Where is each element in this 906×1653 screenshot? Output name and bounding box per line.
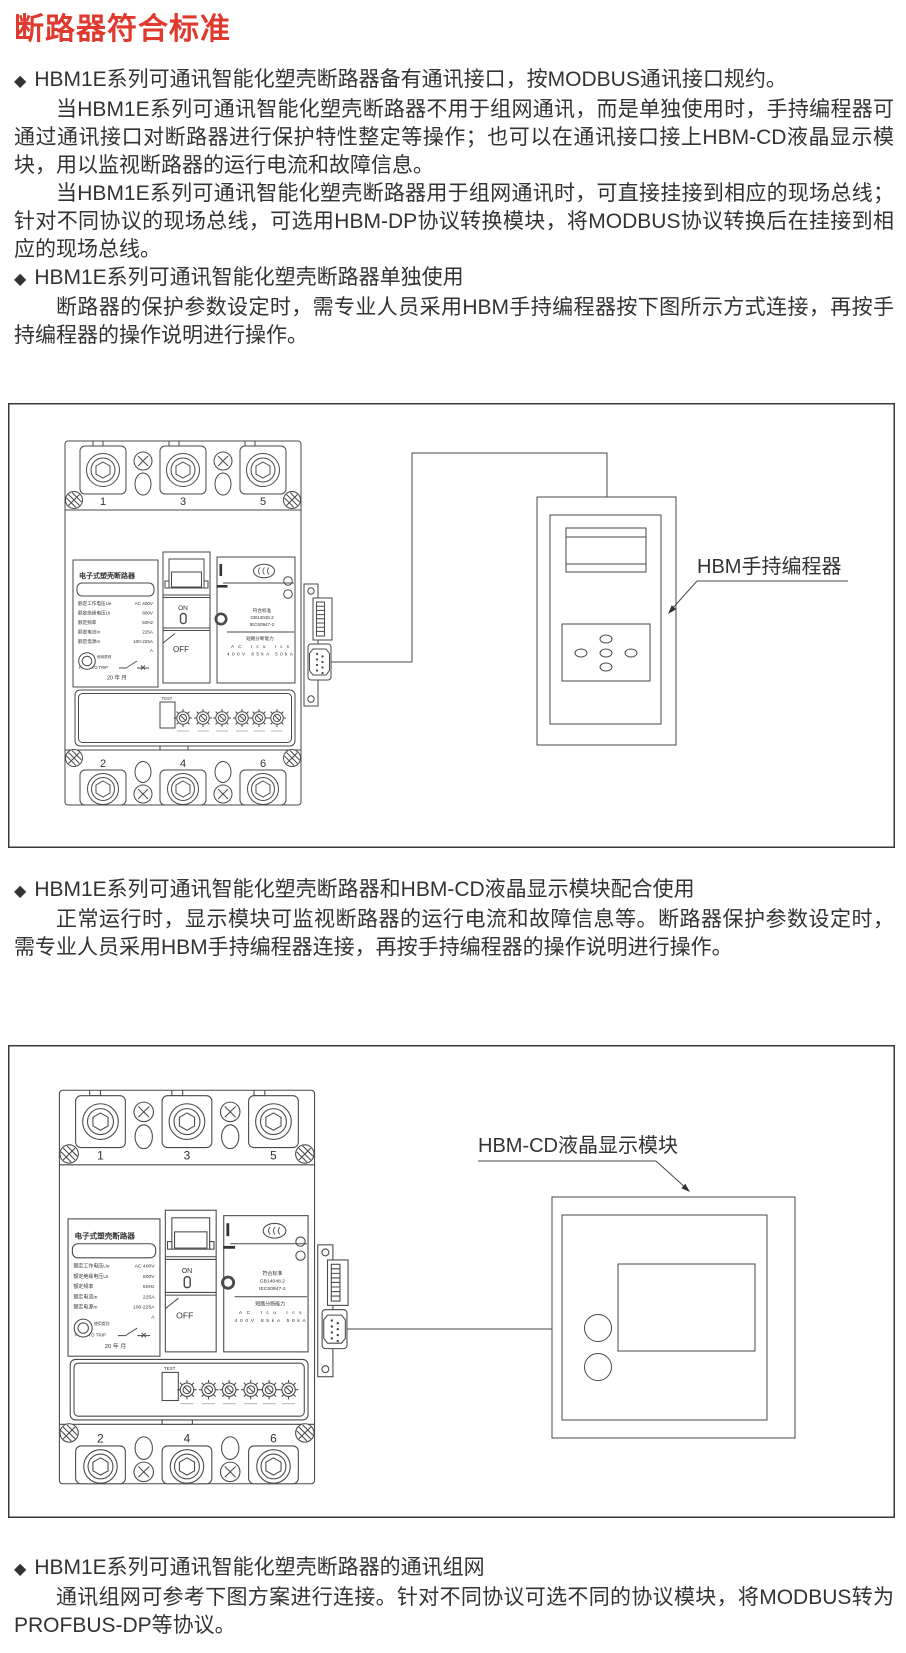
- paragraph: 正常运行时，显示模块可监视断路器的运行电流和故障信息等。断路器保护参数设定时，需…: [14, 906, 894, 962]
- section-heading: ◆HBM1E系列可通讯智能化塑壳断路器的通讯组网: [14, 1554, 894, 1584]
- diagram-standalone-connection: HBM手持编程器: [8, 403, 895, 848]
- diagram-display-module-connection: HBM-CD液晶显示模块: [8, 1045, 895, 1518]
- diamond-bullet-icon: ◆: [14, 271, 26, 288]
- page-title: 断路器符合标准: [14, 4, 231, 48]
- breaker-instance-1: [65, 441, 332, 805]
- diamond-bullet-icon: ◆: [14, 1561, 26, 1578]
- breaker-instance-2: [59, 1090, 348, 1484]
- lcd-module-drawing: [552, 1197, 795, 1438]
- section-heading: ◆HBM1E系列可通讯智能化塑壳断路器和HBM-CD液晶显示模块配合使用: [14, 876, 894, 906]
- section-heading-text: HBM1E系列可通讯智能化塑壳断路器的通讯组网: [34, 1556, 484, 1579]
- paragraph: 断路器的保护参数设定时，需专业人员采用HBM手持编程器按下图所示方式连接，再按手…: [14, 294, 894, 350]
- section-heading: ◆HBM1E系列可通讯智能化塑壳断路器单独使用: [14, 264, 894, 294]
- section-heading-text: HBM1E系列可通讯智能化塑壳断路器备有通讯接口，按MODBUS通讯接口规约。: [34, 68, 787, 91]
- programmer-label: HBM手持编程器: [697, 555, 841, 578]
- document-page: 断路器符合标准 ◆HBM1E系列可通讯智能化塑壳断路器备有通讯接口，按MODBU…: [0, 0, 906, 1653]
- display-module-text-block: ◆HBM1E系列可通讯智能化塑壳断路器和HBM-CD液晶显示模块配合使用 正常运…: [14, 876, 894, 962]
- paragraph: 当HBM1E系列可通讯智能化塑壳断路器不用于组网通讯，而是单独使用时，手持编程器…: [14, 96, 894, 180]
- networking-text-block: ◆HBM1E系列可通讯智能化塑壳断路器的通讯组网 通讯组网可参考下图方案进行连接…: [14, 1554, 894, 1640]
- diamond-bullet-icon: ◆: [14, 73, 26, 90]
- paragraph: 当HBM1E系列可通讯智能化塑壳断路器用于组网通讯时，可直接挂接到相应的现场总线…: [14, 180, 894, 264]
- handheld-programmer-drawing: [537, 497, 676, 745]
- diamond-bullet-icon: ◆: [14, 883, 26, 900]
- intro-text-block: ◆HBM1E系列可通讯智能化塑壳断路器备有通讯接口，按MODBUS通讯接口规约。…: [14, 66, 894, 350]
- section-heading: ◆HBM1E系列可通讯智能化塑壳断路器备有通讯接口，按MODBUS通讯接口规约。: [14, 66, 894, 96]
- paragraph: 通讯组网可参考下图方案进行连接。针对不同协议可选不同的协议模块，将MODBUS转…: [14, 1584, 894, 1640]
- section-heading-text: HBM1E系列可通讯智能化塑壳断路器和HBM-CD液晶显示模块配合使用: [34, 878, 694, 901]
- lcd-module-label: HBM-CD液晶显示模块: [478, 1134, 678, 1157]
- section-heading-text: HBM1E系列可通讯智能化塑壳断路器单独使用: [34, 266, 463, 289]
